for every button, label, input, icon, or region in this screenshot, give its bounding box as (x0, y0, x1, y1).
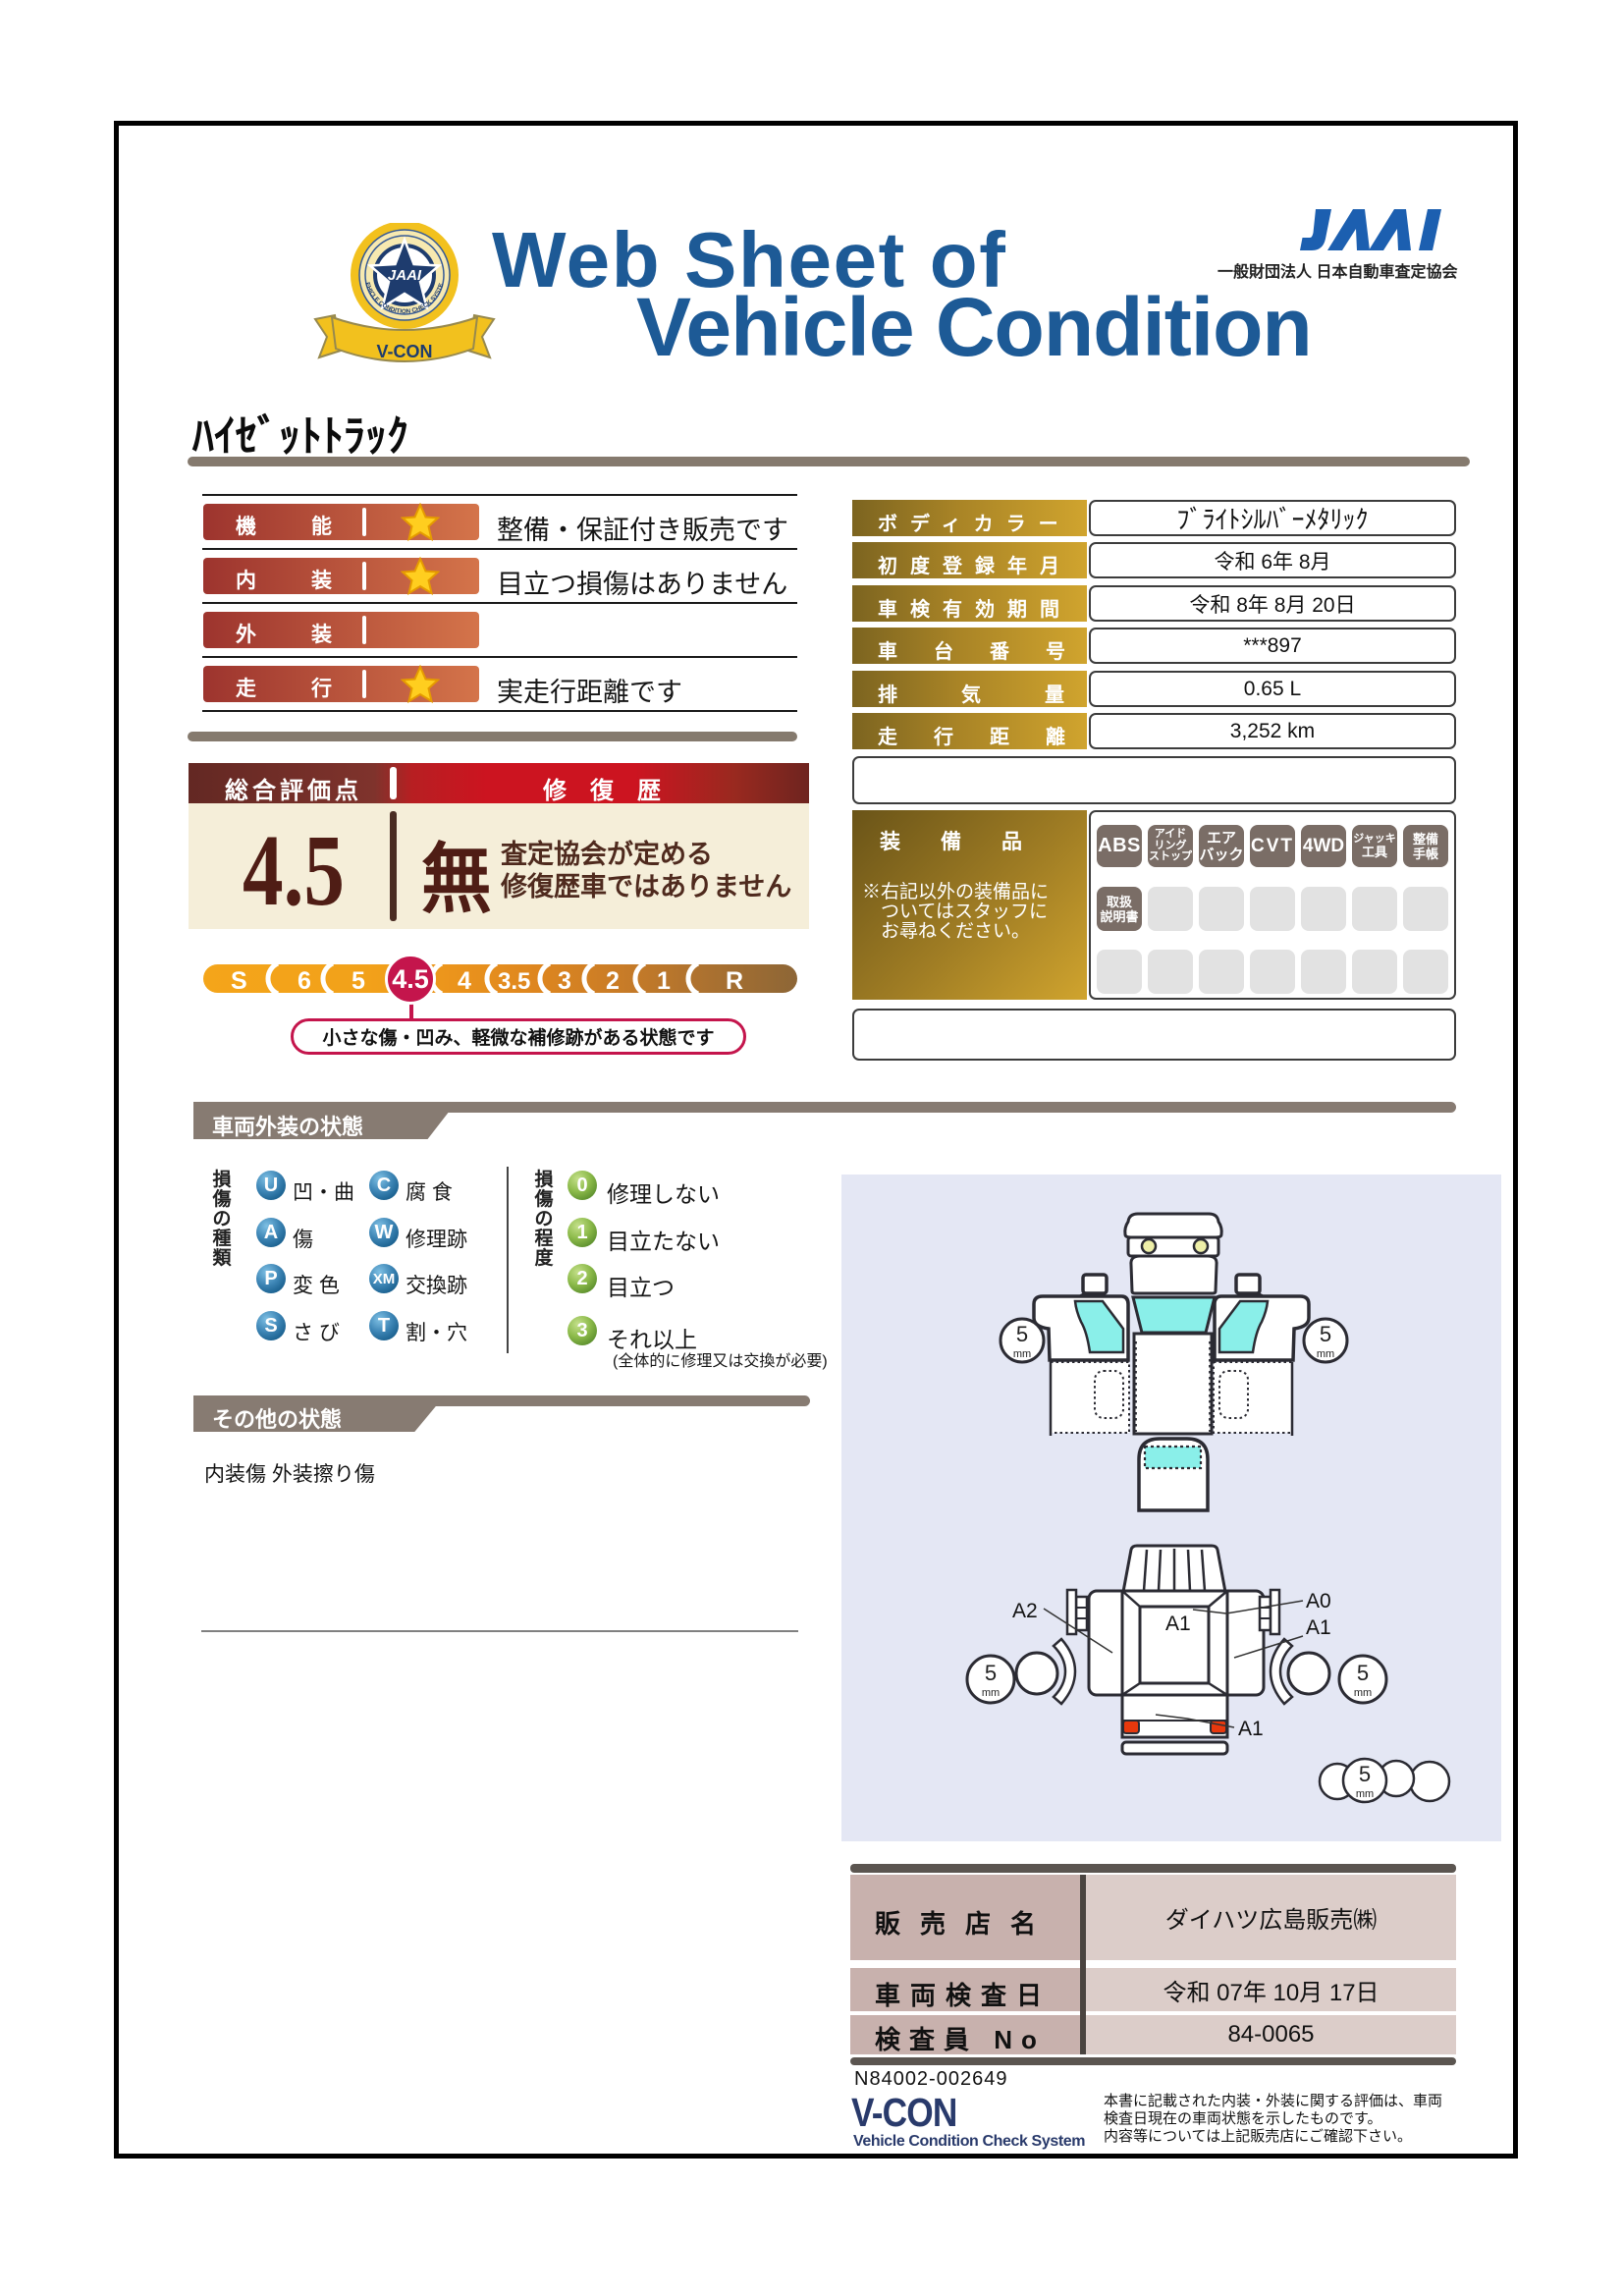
svg-text:mm: mm (1356, 1788, 1374, 1800)
svg-text:5: 5 (1320, 1322, 1331, 1346)
svg-text:A1: A1 (1238, 1718, 1264, 1740)
svg-text:5: 5 (985, 1661, 997, 1685)
svg-text:mm: mm (982, 1687, 1000, 1699)
svg-text:A1: A1 (1165, 1613, 1191, 1635)
svg-text:mm: mm (1354, 1687, 1372, 1699)
svg-text:JAAI: JAAI (388, 267, 422, 284)
svg-text:5: 5 (1359, 1762, 1371, 1786)
svg-text:mm: mm (1317, 1348, 1334, 1360)
svg-text:5: 5 (1016, 1322, 1028, 1346)
svg-text:5: 5 (1357, 1661, 1369, 1685)
svg-text:A1: A1 (1306, 1616, 1331, 1639)
svg-text:mm: mm (1013, 1348, 1031, 1360)
svg-text:A0: A0 (1306, 1590, 1331, 1613)
svg-text:V-CON: V-CON (376, 342, 432, 361)
svg-text:A2: A2 (1012, 1600, 1038, 1622)
